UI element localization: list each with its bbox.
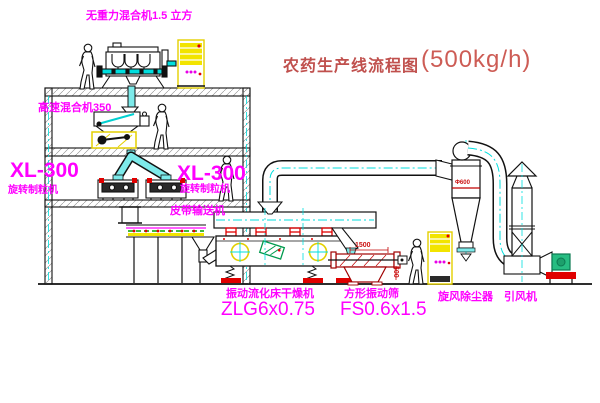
title-capacity: (500kg/h): [421, 46, 531, 74]
exhaust-stack: [504, 162, 540, 282]
flange-ports: [226, 228, 332, 236]
granulator-right-model-label: XL-300: [177, 163, 246, 184]
granulator-left: [98, 178, 138, 200]
fan-label: 引风机: [504, 292, 537, 303]
screen-width-dim: 500: [392, 266, 399, 278]
gravity-mixer-label: 无重力混合机1.5 立方: [86, 11, 192, 22]
cyclone-label: 旋风除尘器: [438, 292, 493, 303]
title-text: 农药生产线流程图: [283, 46, 419, 76]
worker-figure-ground: [409, 239, 425, 284]
granulator-right-name-label: 旋转制粒机: [180, 185, 230, 195]
granulator-left-name-label: 旋转制粒机: [8, 186, 58, 196]
cyclone-diameter-dim: Φ600: [455, 180, 470, 186]
granulator-left-model-label: XL-300: [10, 160, 79, 181]
gravity-mixer: [97, 43, 176, 88]
pesticide-production-line-diagram: 农药生产线流程图 (500kg/h) 无重力混合机1.5 立方 高速混合机350…: [0, 0, 600, 403]
dryer-model-label: ZLG6x0.75: [221, 300, 315, 319]
control-cabinet-top: [177, 40, 205, 88]
indicator-light-icon: [447, 235, 450, 238]
screen-length-dim: 1500: [355, 242, 371, 249]
belt-conveyor-label: 皮带输送机: [170, 206, 225, 217]
worker-figure-second-floor: [154, 104, 170, 149]
worker-figure-top-floor: [80, 44, 96, 89]
mixer-feed-pipe: [128, 86, 135, 108]
discharge-duct: [118, 207, 142, 223]
exhaust-duct: [270, 168, 442, 212]
control-cabinet-right: [428, 232, 452, 284]
indicator-light-icon: [197, 44, 200, 47]
diagram-title: 农药生产线流程图 (500kg/h): [283, 46, 531, 76]
screen-model-label: FS0.6x1.5: [340, 300, 427, 319]
high-speed-mixer-label: 高速混合机350: [38, 103, 111, 114]
belt-conveyor: [126, 225, 222, 283]
induced-draft-fan: [540, 252, 576, 284]
